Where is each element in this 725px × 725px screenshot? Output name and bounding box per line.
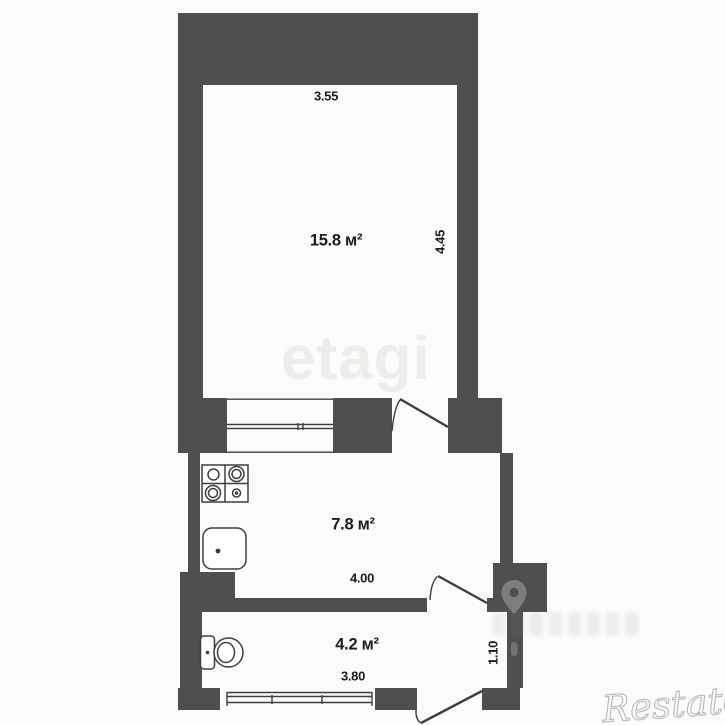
illegible-watermark: [492, 612, 638, 636]
door-opening-bath: [427, 598, 487, 612]
wall-pier: [448, 398, 502, 453]
living-room-area-label: 15.8 м²: [310, 232, 362, 251]
restate-watermark: Restate: [601, 681, 725, 725]
fixtures: [201, 465, 249, 669]
living-room-width-label: 3.55: [314, 89, 338, 104]
bathroom-depth-label: 1.10: [486, 641, 501, 665]
wall-kitchen-left: [188, 453, 200, 574]
stove-icon: [202, 465, 248, 502]
wall-right-upper: [457, 80, 478, 400]
toilet-icon: [201, 636, 244, 669]
etagi-watermark: etagi: [281, 328, 431, 390]
bathroom-area-label: 4.2 м²: [335, 636, 378, 655]
kitchen-area-label: 7.8 м²: [331, 516, 374, 535]
window-bottom: [220, 688, 375, 710]
wall-kitchen-right: [500, 453, 513, 565]
floor-plan: etagi Restate 15.8 м² 3.55 4.45 7.8 м² 4…: [0, 0, 725, 725]
living-room-depth-label: 4.45: [433, 230, 448, 254]
door-opening-room: [392, 398, 448, 453]
wall-bath-left: [180, 612, 202, 688]
bathroom-width-label: 3.80: [341, 669, 365, 684]
window-niche: [227, 398, 333, 453]
sink-icon: [203, 528, 246, 569]
wall-left-upper: [178, 80, 203, 400]
wall-top-slab: [178, 13, 478, 85]
kitchen-width-label: 4.00: [350, 571, 374, 586]
